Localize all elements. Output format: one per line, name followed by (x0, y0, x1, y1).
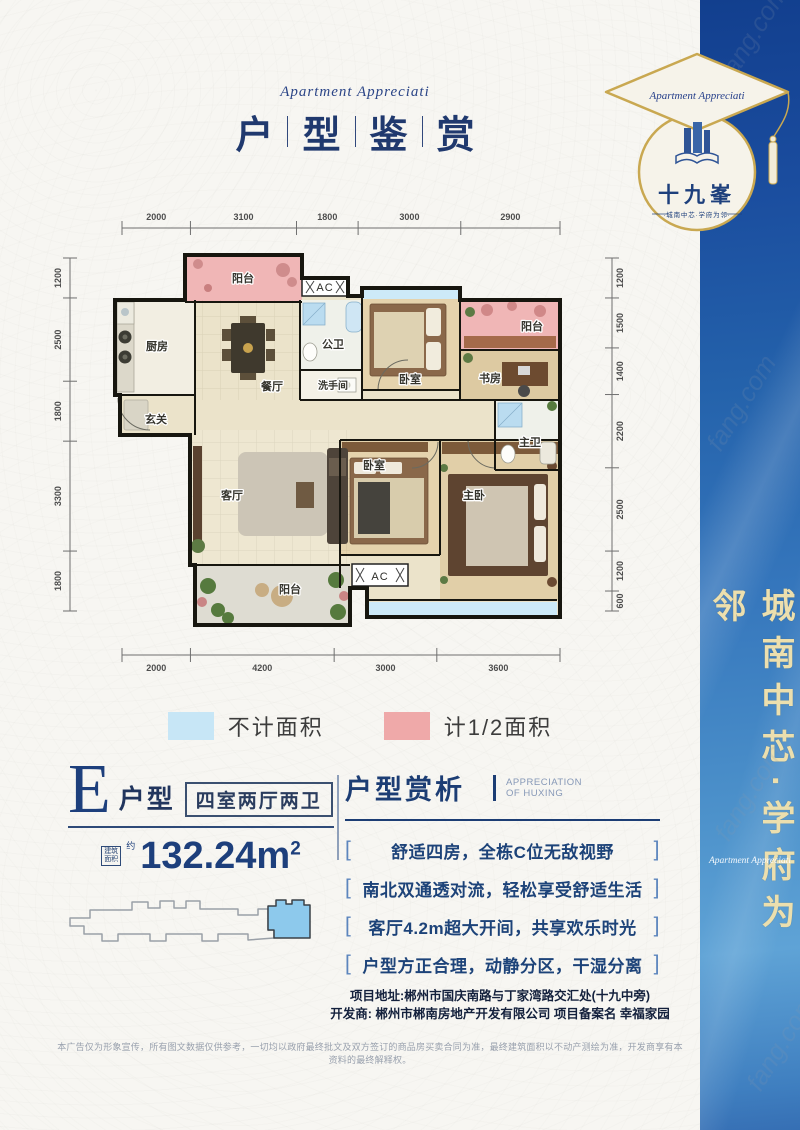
unit-title-row: E 户型 四室两厅两卫 (68, 763, 334, 828)
room-label: 阳台 (232, 271, 254, 285)
room-label: 主卧 (463, 488, 485, 502)
selling-point: [ 户型方正合理，动静分区，干湿分离 ] (345, 945, 660, 983)
room-label: AC (371, 571, 388, 583)
svg-text:600: 600 (615, 593, 625, 608)
svg-text:2500: 2500 (53, 330, 63, 350)
sidebar-script: Apartment Appreciati (700, 856, 800, 866)
room-label: 厨房 (146, 339, 168, 353)
title-separator (422, 116, 423, 147)
room-label: 卧室 (399, 372, 421, 386)
svg-text:1200: 1200 (53, 268, 63, 288)
selling-point-text: 客厅4.2m超大开间，共享欢乐时光 (351, 914, 653, 939)
kitchen-counter-icon (117, 302, 134, 392)
area-legend: 不计面积 计1/2面积 (150, 710, 570, 742)
area-label-line: 建筑 (104, 848, 118, 855)
unit-block: E 户型 四室两厅两卫 建筑 面积 约 132.24m2 (68, 763, 334, 875)
floor-plan: 阳台 AC 厨房 餐厅 公卫 洗手间 卧室 阳台 书房 主卫 玄关 客厅 卧室 … (40, 190, 660, 690)
highlighted-unit (268, 900, 310, 938)
selling-point: [ 南北双通透对流，轻松享受舒适生活 ] (345, 869, 660, 907)
title-char: 赏 (437, 104, 475, 159)
project-address-line: 项目地址:郴州市国庆南路与丁家湾路交汇处(十九中旁) (320, 988, 680, 1006)
svg-text:4200: 4200 (252, 663, 272, 673)
area-label-line: 面积 (104, 856, 118, 863)
room-label: 洗手间 (318, 379, 348, 392)
room-label: AC (316, 282, 333, 294)
analysis-divider-bar (493, 775, 496, 801)
area-approx-mark: 约 (126, 839, 135, 852)
project-info: 项目地址:郴州市国庆南路与丁家湾路交汇处(十九中旁) 开发商: 郴州市郴南房地产… (320, 988, 680, 1023)
svg-text:2900: 2900 (500, 212, 520, 222)
selling-point: [ 舒适四房，全栋C位无敌视野 ] (345, 831, 660, 869)
master-bed-icon (440, 461, 557, 587)
svg-text:2200: 2200 (615, 421, 625, 441)
unit-area-row: 建筑 面积 约 132.24m2 (68, 837, 334, 875)
unit-area-value: 132.24m2 (140, 837, 301, 875)
bracket-close: ] (654, 838, 660, 862)
legend-swatch-blue (168, 712, 214, 740)
selling-point: [ 客厅4.2m超大开间，共享欢乐时光 ] (345, 907, 660, 945)
unit-type-label: 户型 (119, 779, 175, 816)
svg-text:1800: 1800 (53, 401, 63, 421)
column-divider (337, 775, 339, 860)
svg-text:3300: 3300 (53, 486, 63, 506)
title-separator (355, 116, 356, 147)
svg-text:3100: 3100 (233, 212, 253, 222)
unit-layout-badge: 四室两厅两卫 (185, 782, 333, 817)
svg-text:1400: 1400 (615, 361, 625, 381)
unit-letter: E (68, 763, 111, 818)
svg-text:3000: 3000 (399, 212, 419, 222)
logo-brand-name: 十九峯 (658, 183, 736, 207)
tassel-cord-icon (773, 92, 789, 138)
room-label: 玄关 (145, 412, 167, 426)
room-label: 卧室 (363, 458, 385, 472)
developer-line: 开发商: 郴州市郴南房地产开发有限公司 项目备案名 幸福家园 (320, 1006, 680, 1024)
room-label: 客厅 (220, 488, 243, 502)
svg-text:1800: 1800 (317, 212, 337, 222)
logo-tagline: ·城南中芯·学府为邻· (663, 210, 730, 219)
bracket-close: ] (654, 876, 660, 900)
analysis-subtitle: APPRECIATIONOF HUXING (506, 777, 582, 799)
legend-item-half-area: 计1/2面积 (384, 710, 553, 742)
bracket-close: ] (654, 914, 660, 938)
building-outline (70, 901, 274, 941)
selling-point-text: 舒适四房，全栋C位无敌视野 (351, 838, 653, 863)
svg-text:3000: 3000 (375, 663, 395, 673)
analysis-section: 户型赏析 APPRECIATIONOF HUXING [ 舒适四房，全栋C位无敌… (345, 768, 660, 983)
legend-label: 计1/2面积 (444, 710, 553, 742)
bed-icon (350, 458, 428, 544)
disclaimer-text: 本广告仅为形象宣传，所有图文数据仅供参考，一切均以政府最终批文及双方签订的商品房… (55, 1040, 685, 1066)
tassel-icon (769, 142, 777, 184)
legend-swatch-pink (384, 712, 430, 740)
legend-item-no-area: 不计面积 (168, 710, 324, 742)
svg-text:3600: 3600 (488, 663, 508, 673)
svg-text:2500: 2500 (615, 499, 625, 519)
svg-text:1800: 1800 (53, 571, 63, 591)
title-char: 型 (302, 104, 340, 159)
bracket-close: ] (654, 952, 660, 976)
poster-page: 城南中芯·学府为邻 Apartment Appreciati fang.com … (0, 0, 800, 1130)
room-label: 书房 (479, 371, 501, 385)
sidebar-slogan: 城南中芯·学府为邻 (700, 588, 800, 988)
svg-text:1500: 1500 (615, 313, 625, 333)
room-label: 主卫 (519, 435, 541, 449)
title-separator (287, 116, 288, 147)
tassel-knot-icon (770, 136, 776, 142)
logo-cap-script: Apartment Appreciati (648, 90, 744, 102)
svg-text:2000: 2000 (146, 212, 166, 222)
title-char: 鉴 (370, 104, 408, 159)
room-label: 阳台 (279, 582, 301, 596)
room-label: 阳台 (521, 319, 543, 333)
analysis-header: 户型赏析 APPRECIATIONOF HUXING (345, 768, 660, 821)
title-char: 户 (235, 104, 273, 159)
analysis-title: 户型赏析 (345, 768, 465, 807)
selling-point-text: 户型方正合理，动静分区，干湿分离 (351, 952, 653, 977)
svg-text:1200: 1200 (615, 268, 625, 288)
svg-text:1200: 1200 (615, 561, 625, 581)
legend-label: 不计面积 (228, 710, 324, 742)
building-key-plan (62, 884, 322, 966)
area-label-box: 建筑 面积 (101, 846, 121, 866)
svg-text:2000: 2000 (146, 663, 166, 673)
room-label: 餐厅 (260, 379, 283, 393)
bed-icon (370, 304, 446, 376)
selling-point-text: 南北双通透对流，轻松享受舒适生活 (351, 876, 653, 901)
selling-points: [ 舒适四房，全栋C位无敌视野 ] [ 南北双通透对流，轻松享受舒适生活 ] [… (345, 831, 660, 983)
room-label: 公卫 (322, 338, 344, 351)
